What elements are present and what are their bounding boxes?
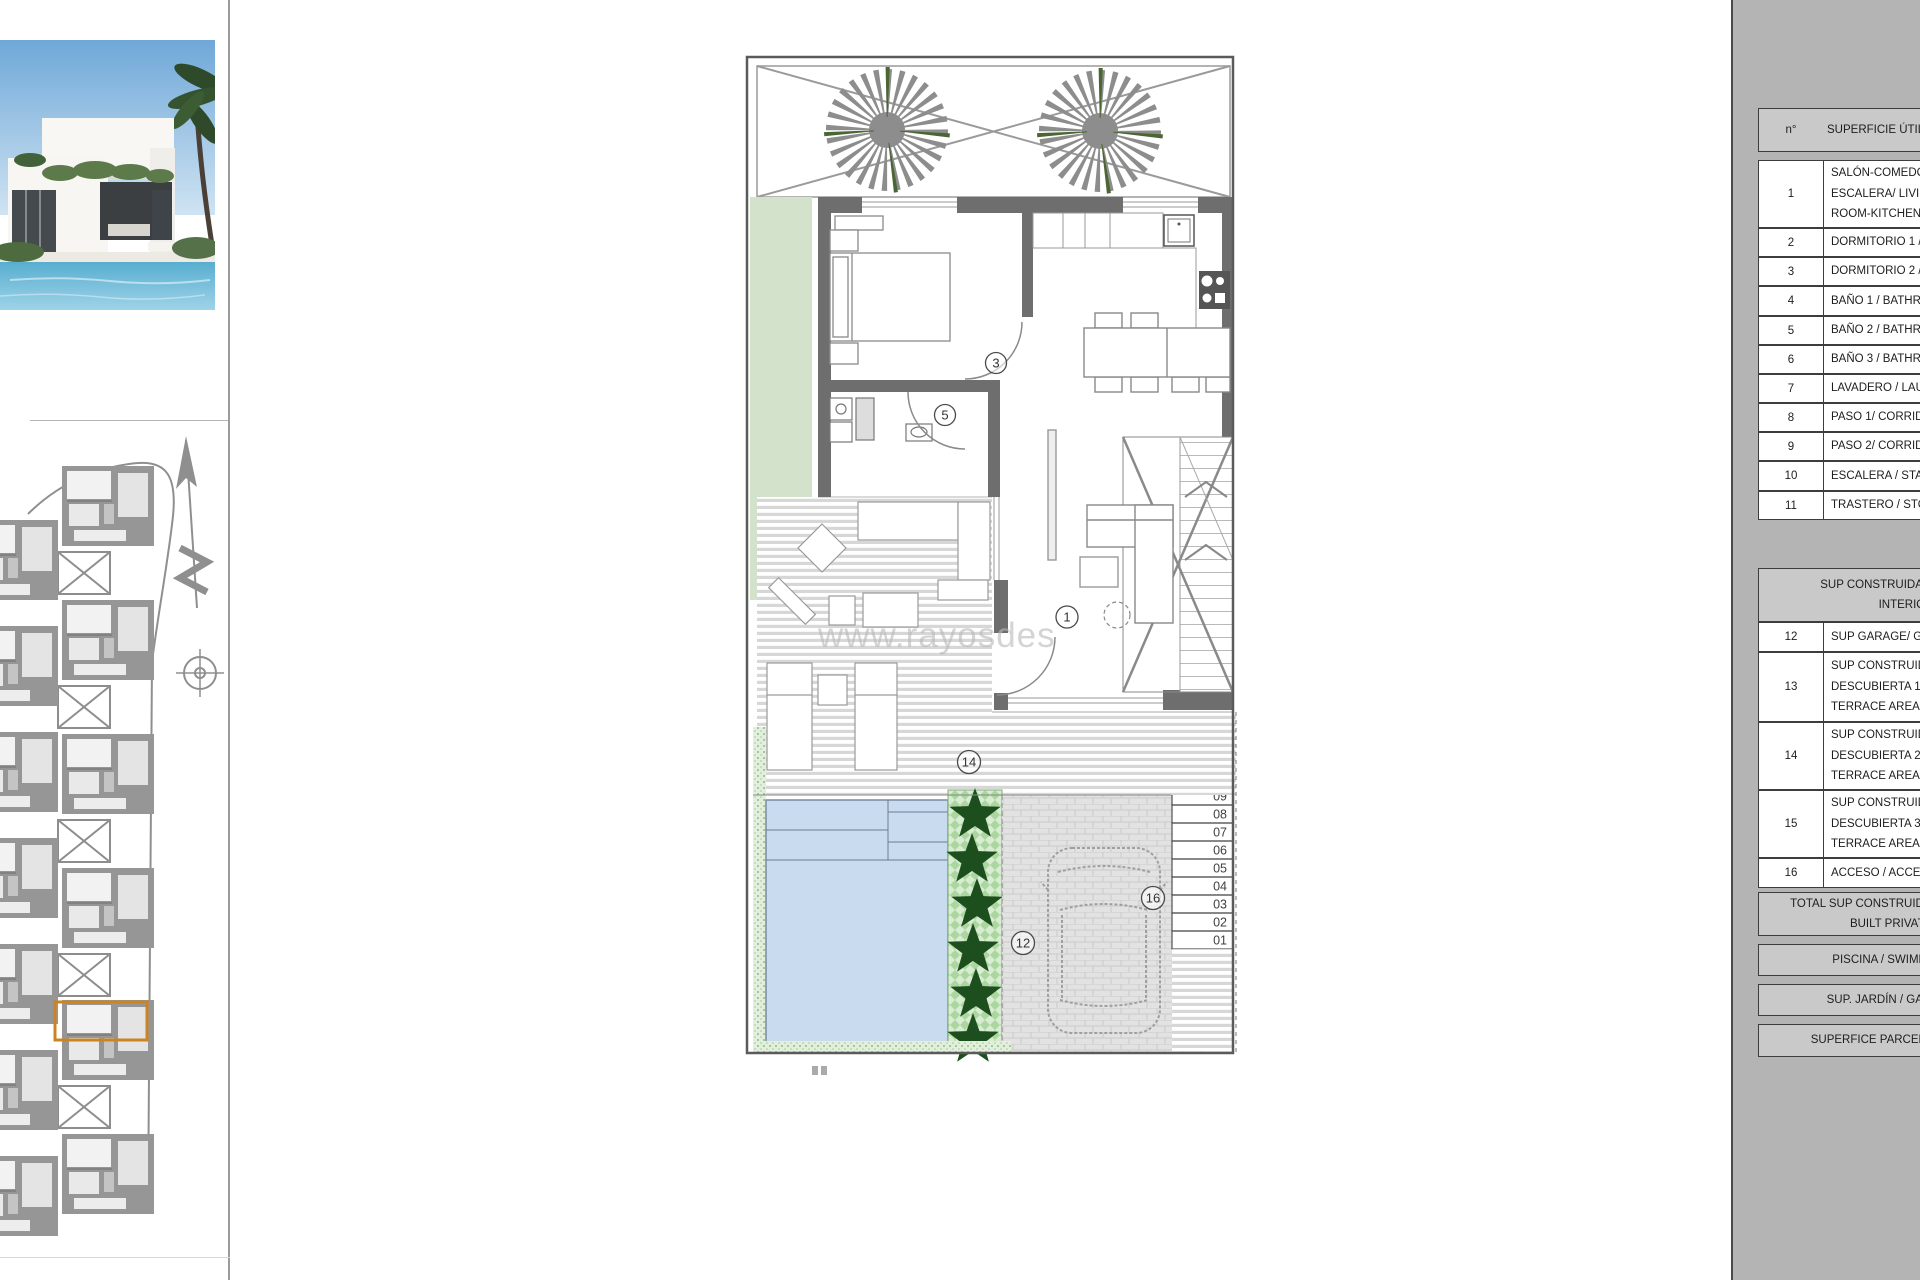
row-num: 2 [1759, 229, 1824, 256]
access-ramp [1172, 949, 1233, 1051]
row-label: SUP CONSTRUIDA [1831, 725, 1920, 746]
row-label: SUP GARAGE/ GARAGE AREA [1831, 627, 1920, 648]
living-furniture [1048, 430, 1173, 623]
total-line: BUILT PRIVATE AREA [1850, 914, 1920, 934]
site-unit [0, 732, 58, 812]
table-row: 11 TRASTERO / STORAGE [1758, 491, 1920, 520]
table-row: 9 PASO 2/ CORRIDOR 2 [1758, 432, 1920, 461]
row-num: 1 [1759, 161, 1824, 227]
row-label: BAÑO 1 / BATHROOM 1 [1831, 291, 1920, 312]
table-row: 2 DORMITORIO 1 / BEDROOM 1 [1758, 228, 1920, 257]
garden-edge-strip [753, 727, 766, 1053]
room-label-5: 5 [941, 408, 948, 423]
dashed-circle-marker [1104, 602, 1130, 628]
row-num: 11 [1759, 492, 1824, 519]
tree-icon [843, 86, 931, 174]
table-total-row: TOTAL SUP CONSTRUIDA PRIVADA/ TOTAL BUIL… [1758, 892, 1920, 936]
table-row: 8 PASO 1/ CORRIDOR 1 [1758, 403, 1920, 432]
row-num: 3 [1759, 258, 1824, 285]
row-label: ESCALERA/ LIVING-DINING [1831, 184, 1920, 205]
row-label: BAÑO 3 / BATHROOM 3 [1831, 349, 1920, 370]
room-label-14: 14 [962, 755, 976, 770]
table-row: 3 DORMITORIO 2 / BEDROOM 2 [1758, 257, 1920, 286]
room-label-12: 12 [1016, 936, 1030, 951]
summary-label: PISCINA / SWIMMING POOL [1832, 950, 1920, 970]
plan-sheet-page: { "panel": { "header": { "num": "n°", "t… [0, 0, 1920, 1280]
row-num: 15 [1759, 791, 1824, 857]
terrace-lower [992, 712, 1236, 795]
stair-step-label: 06 [1213, 844, 1227, 858]
laundry-fixtures [830, 398, 932, 442]
stair-step-label: 04 [1213, 880, 1227, 894]
row-num: 5 [1759, 317, 1824, 344]
row-num: 9 [1759, 433, 1824, 460]
stair-step-label: 07 [1213, 826, 1227, 840]
table-row: 16 ACCESO / ACCESS [1758, 858, 1920, 888]
room-label-1: 1 [1063, 610, 1070, 625]
stair-numbers: 09 08 07 06 05 04 03 02 01 [1171, 784, 1234, 949]
stair-step-label: 05 [1213, 862, 1227, 876]
table-header: n° SUPERFICIE ÚTIL / USEFUL AREA [1758, 108, 1920, 152]
stair-step-label: 02 [1213, 916, 1227, 930]
site-plan [0, 380, 230, 1260]
table-header-num: n° [1759, 109, 1823, 151]
table-row: 7 LAVADERO / LAUNDRY [1758, 374, 1920, 403]
summary-label: SUPERFICE PARCELA / PLOT AREA [1811, 1030, 1920, 1050]
bedroom-furniture [830, 216, 950, 364]
row-num: 8 [1759, 404, 1824, 431]
site-unit [62, 734, 154, 814]
site-unit [0, 1050, 58, 1130]
row-label: ROOM-KITCHEN-STAIRS [1831, 204, 1920, 225]
table-row: 14 SUP CONSTRUIDA DESCUBIERTA 2 / OPEN T… [1758, 722, 1920, 790]
site-garage-x [58, 954, 110, 996]
stair-step-label: 08 [1213, 808, 1227, 822]
section-header-line: SUP CONSTRUIDA INTERIOR / TOTAL [1820, 575, 1920, 595]
row-label: PASO 2/ CORRIDOR 2 [1831, 436, 1920, 457]
photo-pool [0, 262, 215, 310]
table-row: 5 BAÑO 2 / BATHROOM 2 [1758, 316, 1920, 345]
row-label: TERRACE AREA 2 [1831, 766, 1920, 787]
site-garage-x [58, 686, 110, 728]
site-garage-x [58, 1086, 110, 1128]
row-label: TRASTERO / STORAGE [1831, 495, 1920, 516]
row-label: ACCESO / ACCESS [1831, 863, 1920, 884]
site-unit [62, 600, 154, 680]
section-header-line: INTERIOR AREA [1879, 595, 1920, 615]
row-num: 10 [1759, 462, 1824, 490]
table-row: 6 BAÑO 3 / BATHROOM 3 [1758, 345, 1920, 374]
site-garage-x [58, 820, 110, 862]
row-num: 14 [1759, 723, 1824, 789]
stair-step-label: 01 [1213, 934, 1227, 948]
north-arrow-icon [176, 436, 224, 697]
table-summary-plot: SUPERFICE PARCELA / PLOT AREA [1758, 1024, 1920, 1057]
site-unit [62, 868, 154, 948]
hedge-strip [948, 790, 1002, 1053]
table-row: 10 ESCALERA / STAIRS [1758, 461, 1920, 491]
swimming-pool [766, 800, 948, 1050]
table-row: 4 BAÑO 1 / BATHROOM 1 [1758, 286, 1920, 316]
row-label: ESCALERA / STAIRS [1831, 466, 1920, 487]
row-label: DORMITORIO 2 / BEDROOM 2 [1831, 261, 1920, 282]
row-label: DORMITORIO 1 / BEDROOM 1 [1831, 232, 1920, 253]
room-label-3: 3 [992, 356, 999, 371]
room-label-16: 16 [1146, 891, 1160, 906]
row-label: DESCUBIERTA 1 / OPEN [1831, 677, 1920, 698]
site-unit [62, 466, 154, 546]
site-unit [0, 838, 58, 918]
row-num: 12 [1759, 623, 1824, 651]
row-label: DESCUBIERTA 3 / OPEN [1831, 814, 1920, 835]
row-num: 4 [1759, 287, 1824, 315]
table-summary-garden: SUP. JARDÍN / GARDEN AREA [1758, 984, 1920, 1016]
scale-mark [812, 1066, 827, 1075]
row-num: 13 [1759, 653, 1824, 721]
summary-label: SUP. JARDÍN / GARDEN AREA [1827, 990, 1920, 1010]
site-unit [0, 1156, 58, 1236]
table-row: 15 SUP CONSTRUIDA DESCUBIERTA 3 / OPEN T… [1758, 790, 1920, 858]
tree-icon [1056, 87, 1144, 175]
total-line: TOTAL SUP CONSTRUIDA PRIVADA/ TOTAL [1790, 894, 1920, 914]
site-unit [0, 626, 58, 706]
row-label: SUP CONSTRUIDA [1831, 793, 1920, 814]
row-label: TERRACE AREA 3 [1831, 834, 1920, 855]
villa-photo [0, 40, 215, 310]
row-label: BAÑO 2 / BATHROOM 2 [1831, 320, 1920, 341]
table-row: 13 SUP CONSTRUIDA DESCUBIERTA 1 / OPEN T… [1758, 652, 1920, 722]
row-label: SUP CONSTRUIDA [1831, 656, 1920, 677]
table-row: 1 SALÓN-COMEDOR-COCINA- ESCALERA/ LIVING… [1758, 160, 1920, 228]
site-unit [0, 520, 58, 600]
watermark-text: www.rayosdes [818, 616, 1056, 656]
stair-step-label: 03 [1213, 898, 1227, 912]
row-num: 7 [1759, 375, 1824, 402]
row-label: SALÓN-COMEDOR-COCINA- [1831, 163, 1920, 184]
stove-icon [1199, 271, 1230, 309]
row-label: TERRACE AREA 1 [1831, 697, 1920, 718]
row-label: LAVADERO / LAUNDRY [1831, 378, 1920, 399]
garden-bottom-strip [753, 1041, 1011, 1053]
site-unit [0, 944, 58, 1024]
row-num: 6 [1759, 346, 1824, 373]
row-label: DESCUBIERTA 2 / OPEN [1831, 746, 1920, 767]
table-row: 12 SUP GARAGE/ GARAGE AREA [1758, 622, 1920, 652]
table-header-title: SUPERFICIE ÚTIL / USEFUL AREA [1823, 109, 1920, 151]
site-unit [62, 1134, 154, 1214]
table-summary-pool: PISCINA / SWIMMING POOL [1758, 944, 1920, 976]
row-num: 16 [1759, 859, 1824, 887]
row-label: PASO 1/ CORRIDOR 1 [1831, 407, 1920, 428]
floor-plan: 09 08 07 06 05 04 03 02 01 [740, 50, 1245, 1080]
dining-set [1084, 313, 1230, 392]
table-section-header: SUP CONSTRUIDA INTERIOR / TOTAL INTERIOR… [1758, 568, 1920, 622]
site-garage-x [58, 552, 110, 594]
